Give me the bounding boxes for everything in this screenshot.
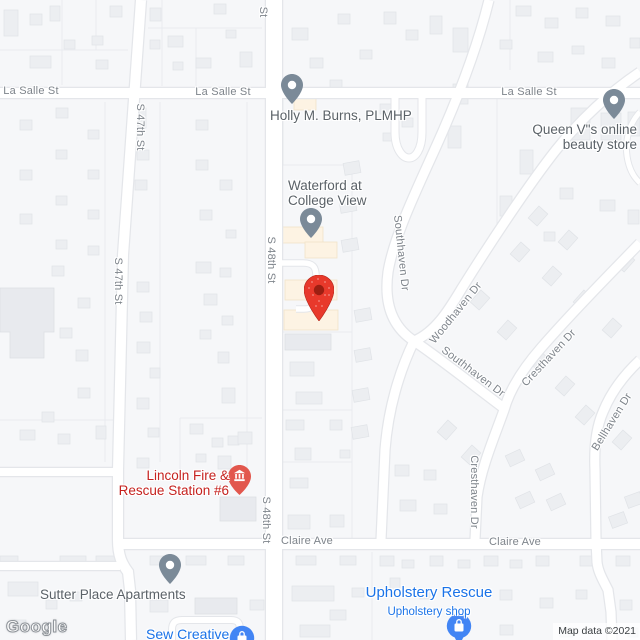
poi-lincoln-line2: Rescue Station #6 [119, 483, 229, 498]
poi-label-holly-burns[interactable]: Holly M. Burns, PLMHP [270, 108, 412, 123]
fire-station-pin-icon[interactable] [228, 465, 251, 500]
poi-label-sutter-place[interactable]: Sutter Place Apartments [40, 587, 186, 602]
poi-label-waterford[interactable]: Waterford at College View [288, 179, 367, 208]
waterford-pin-icon[interactable] [300, 208, 322, 243]
queen-v-pin-icon[interactable] [603, 89, 625, 124]
street-label-s47-1: S 47th St [134, 103, 146, 150]
sutter-place-pin-icon[interactable] [159, 554, 181, 589]
poi-queen-line1: Queen V"s online [532, 122, 637, 137]
poi-waterford-line2: College View [288, 193, 367, 208]
street-label-s48-top: St [257, 7, 269, 18]
poi-upholstery-name: Upholstery Rescue [366, 584, 493, 601]
street-label-claire-1: Claire Ave [281, 535, 333, 547]
poi-label-upholstery[interactable]: Upholstery Rescue Upholstery shop [340, 584, 518, 620]
street-label-la-salle-1: La Salle St [3, 85, 58, 97]
street-label-claire-2: Claire Ave [489, 536, 541, 548]
google-watermark[interactable]: Google [6, 617, 68, 637]
holly-burns-pin-icon[interactable] [281, 74, 303, 109]
street-label-s47-2: S 47th St [112, 257, 124, 304]
red-marker-icon[interactable] [304, 275, 334, 326]
poi-label-sew-creative[interactable]: Sew Creative [146, 626, 229, 640]
street-label-s48-2: S 48th St [260, 496, 272, 543]
poi-upholstery-subtitle: Upholstery shop [387, 606, 470, 618]
street-label-la-salle-2: La Salle St [195, 86, 250, 98]
poi-waterford-line1: Waterford at [288, 178, 362, 193]
poi-label-lincoln-fire[interactable]: Lincoln Fire & Rescue Station #6 [119, 469, 229, 498]
map-attribution: Map data ©2021 [553, 623, 640, 640]
poi-queen-line2: beauty store [563, 137, 637, 152]
sew-creative-shopping-pin-icon[interactable] [229, 625, 255, 640]
street-label-s48-1: S 48th St [265, 236, 277, 283]
poi-lincoln-line1: Lincoln Fire & [146, 468, 229, 483]
map-canvas[interactable]: La Salle St La Salle St La Salle St S 47… [0, 0, 640, 640]
poi-label-queen-v[interactable]: Queen V"s online beauty store [532, 122, 637, 152]
street-label-cresthaven-2: Cresthaven Dr [468, 455, 480, 529]
street-label-la-salle-3: La Salle St [501, 86, 556, 98]
